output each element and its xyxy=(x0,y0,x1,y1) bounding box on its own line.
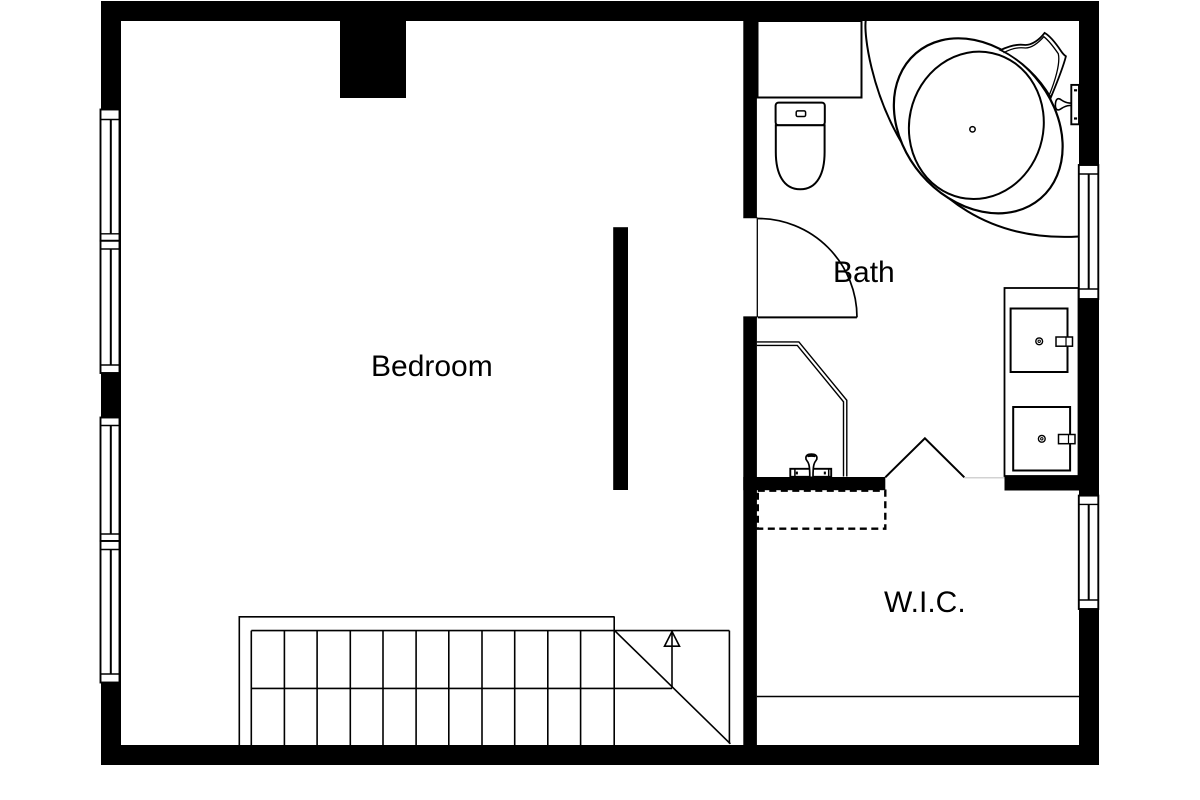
svg-text:Bedroom: Bedroom xyxy=(371,350,493,383)
svg-text:Bath: Bath xyxy=(833,256,895,289)
svg-text:W.I.C.: W.I.C. xyxy=(884,586,966,619)
